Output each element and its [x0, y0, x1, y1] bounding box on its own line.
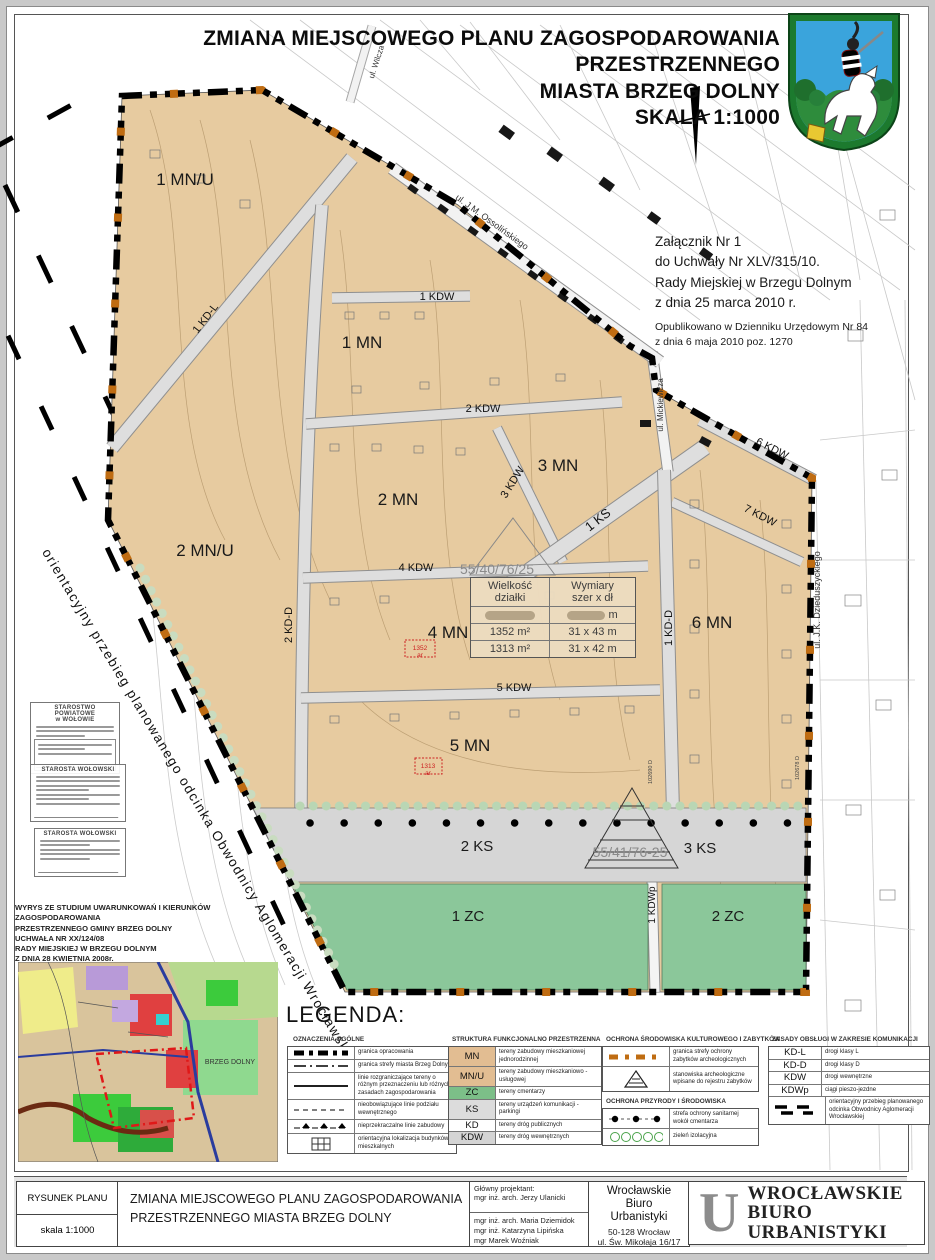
- boundary-dash-symbol: [288, 1047, 355, 1059]
- internal-division-line-symbol: [288, 1100, 355, 1119]
- parcel-size-table: Wielkośćdziałki Wymiaryszer x dł m 1352 …: [470, 577, 636, 658]
- annex-note: Załącznik Nr 1 do Uchwały Nr XLV/315/10.…: [655, 232, 917, 350]
- footer-designers-cell: Główny projektant: mgr inż. arch. Jerzy …: [469, 1181, 590, 1247]
- ks-parking-strip: [253, 806, 806, 882]
- table-row-redacted: m: [471, 606, 635, 623]
- road-label-1kdwp: 1 KDWp: [647, 886, 658, 924]
- study-inset-map: BRZEG DOLNY: [18, 962, 278, 1162]
- street-label-mickiewicza: ul. Mickiewicza: [656, 378, 665, 432]
- table-header-size: Wielkośćdziałki: [471, 578, 550, 606]
- legend-item: granica strefy miasta Brzeg Dolny: [288, 1059, 456, 1072]
- zone-label-3ks: 3 KS: [684, 840, 717, 857]
- office-address: 50-128 Wrocław: [589, 1227, 689, 1238]
- footer-office-cell: Wrocławskie Biuro Urbanistyki 50-128 Wro…: [588, 1181, 690, 1247]
- legend-sec1-heading: OZNACZENIA OGÓLNE: [293, 1036, 364, 1043]
- redacted-value: [485, 611, 535, 620]
- title-line-3-scale: SKALA 1:1000: [28, 105, 780, 131]
- zc-cemetery-zones: [292, 884, 806, 990]
- annex-line-4: z dnia 25 marca 2010 r.: [655, 293, 917, 313]
- zone-label-3mn: 3 MN: [538, 456, 579, 475]
- legend-sec5-heading: ZASADY OBSŁUGI W ZAKRESIE KOMUNIKACJI: [772, 1036, 918, 1043]
- zone-label-4mn: 4 MN: [428, 623, 469, 642]
- title-line-1: ZMIANA MIEJSCOWEGO PLANU ZAGOSPODAROWANI…: [28, 26, 780, 79]
- svg-text:ar: ar: [425, 770, 432, 777]
- scale-label: skala 1:1000: [17, 1215, 118, 1245]
- study-extract-note: WYRYS ZE STUDIUM UWARUNKOWAŃ I KIERUNKÓW…: [15, 903, 295, 965]
- road-label-2kdw: 2 KDW: [466, 403, 501, 415]
- road-label-5kdw: 5 KDW: [497, 682, 532, 694]
- sanitary-zone-symbol: [603, 1109, 670, 1128]
- legend-general-symbols: granica opracowania granica strefy miast…: [287, 1046, 457, 1154]
- legend-item: KS tereny urządzeń komunikacji - parking…: [449, 1099, 601, 1119]
- archeo-site-symbol: [603, 1067, 670, 1091]
- bypass-route-symbol: [769, 1097, 826, 1124]
- point-ref-b: 102678 D: [795, 756, 801, 780]
- legend-heritage: granica strefy ochrony zabytków archeolo…: [602, 1046, 759, 1092]
- designer-name: mgr inż. arch. Jerzy Ulanicki: [474, 1193, 585, 1202]
- swatch-mnu: MN/U: [449, 1067, 496, 1086]
- table-header-dims: Wymiaryszer x dł: [550, 578, 635, 606]
- zone-label-2ks: 2 KS: [461, 838, 494, 855]
- team-member: mgr Marek Woźniak: [474, 1236, 585, 1246]
- legend-item: strefa ochrony sanitarnej wokół cmentarz…: [603, 1109, 758, 1128]
- inset-city-label: BRZEG DOLNY: [205, 1059, 256, 1066]
- team-member: mgr inż. Katarzyna Lipińska: [474, 1226, 585, 1236]
- road-label-1kdd: 1 KD-D: [663, 610, 675, 646]
- legend-item: KDW tereny dróg wewnętrznych: [449, 1131, 601, 1144]
- table-row: 1313 m² 31 x 42 m: [471, 640, 635, 657]
- wbu-logo-icon: U: [699, 1188, 739, 1238]
- drawing-type-label: RYSUNEK PLANU: [17, 1182, 118, 1215]
- house-location-symbol: [288, 1134, 355, 1153]
- legend-item: orientacyjny przebieg planowanego odcink…: [769, 1096, 929, 1124]
- parcel-ref-b: 55/41/76-25: [593, 844, 668, 860]
- team-member: mgr inż. arch. Maria Dziemidok: [474, 1216, 585, 1226]
- legend-item: granica strefy ochrony zabytków archeolo…: [603, 1047, 758, 1066]
- legend-item: MN tereny zabudowy mieszkaniowej jednoro…: [449, 1047, 601, 1066]
- svg-text:ar: ar: [417, 652, 424, 659]
- office-name: Wrocławskie: [589, 1185, 689, 1198]
- zone-label-6mn: 6 MN: [692, 613, 733, 632]
- legend-item: ZC tereny cmentarzy: [449, 1086, 601, 1099]
- footer-title-line-1: ZMIANA MIEJSCOWEGO PLANU ZAGOSPODAROWANI…: [130, 1190, 470, 1209]
- stamp-starosta-wolowski-1: STAROSTA WOŁOWSKI: [30, 764, 126, 822]
- legend-sec2-heading: STRUKTURA FUNKCJONALNO PRZESTRZENNA: [452, 1036, 601, 1043]
- plan-sheet-page: 1352 ar 1313 ar 1 MN/U 2 MN/U 1 MN 2 MN …: [0, 0, 935, 1260]
- publication-line-1: Opublikowano w Dzienniku Urzędowym Nr 84: [655, 320, 917, 335]
- publication-line-2: z dnia 6 maja 2010 poz. 1270: [655, 335, 917, 350]
- swatch-mn: MN: [449, 1047, 496, 1066]
- zone-label-2mn: 2 MN: [378, 490, 419, 509]
- street-label-dzieduszyckiego: ul. J.K. Dzieduszyckiego: [812, 551, 822, 649]
- brzeg-dolny-coat-of-arms: [787, 12, 901, 152]
- legend-item: linie rozgraniczające tereny o różnym pr…: [288, 1072, 456, 1100]
- point-ref-a: 102690 D: [648, 760, 654, 784]
- wbu-logo-text: WROCŁAWSKIE BIURO URBANISTYKI: [747, 1184, 902, 1242]
- redacted-value: [567, 611, 605, 620]
- legend-item: KDW drogi wewnętrzne: [769, 1071, 929, 1084]
- legend-transport: KD-L drogi klasy L KD-D drogi klasy D KD…: [768, 1046, 930, 1125]
- legend-item: KD-D drogi klasy D: [769, 1059, 929, 1072]
- legend-item: granica opracowania: [288, 1047, 456, 1059]
- legend-item: MN/U tereny zabudowy mieszkaniowo - usłu…: [449, 1066, 601, 1086]
- red-mark-1352: 1352: [413, 645, 428, 652]
- footer-drawing-cell: RYSUNEK PLANU skala 1:1000: [16, 1181, 119, 1247]
- annex-line-3: Rady Miejskiej w Brzegu Dolnym: [655, 273, 917, 293]
- legend-item: orientacyjna lokalizacja budynków mieszk…: [288, 1133, 456, 1153]
- zone-label-2zc: 2 ZC: [712, 908, 745, 925]
- legend-title: LEGENDA:: [286, 1002, 405, 1028]
- city-zone-line-symbol: [288, 1060, 355, 1072]
- zone-label-5mn: 5 MN: [450, 736, 491, 755]
- legend-item: KD-L drogi klasy L: [769, 1047, 929, 1059]
- legend-item: KD tereny dróg publicznych: [449, 1119, 601, 1132]
- legend-item: zieleń izolacyjna: [603, 1128, 758, 1145]
- footer-title-cell: ZMIANA MIEJSCOWEGO PLANU ZAGOSPODAROWANI…: [117, 1181, 471, 1247]
- designer-label: Główny projektant:: [474, 1184, 585, 1193]
- legend-sec4-heading: OCHRONA PRZYRODY I ŚRODOWISKA: [606, 1098, 726, 1105]
- road-label-4kdw: 4 KDW: [399, 562, 434, 574]
- annex-line-1: Załącznik Nr 1: [655, 232, 917, 252]
- annex-line-2: do Uchwały Nr XLV/315/10.: [655, 252, 917, 272]
- legend-item: nieobowiązujące linie podziału wewnętrzn…: [288, 1099, 456, 1119]
- footer-title-line-2: PRZESTRZENNEGO MIASTA BRZEG DOLNY: [130, 1209, 470, 1228]
- legend-item: nieprzekraczalne linie zabudowy: [288, 1119, 456, 1133]
- swatch-kd: KD: [449, 1120, 496, 1132]
- legend-environment: strefa ochrony sanitarnej wokół cmentarz…: [602, 1108, 759, 1146]
- legend-item: KDWp ciągi pieszo-jezdne: [769, 1084, 929, 1097]
- road-label-2kdd: 2 KD-D: [283, 607, 295, 643]
- stamp-starosta-wolowski-2: STAROSTA WOŁOWSKI: [34, 828, 126, 877]
- zone-label-2mnu: 2 MN/U: [176, 541, 234, 560]
- title-line-2: MIASTA BRZEG DOLNY: [28, 79, 780, 105]
- legend-sec3-heading: OCHRONA ŚRODOWISKA KULTUROWEGO I ZABYTKÓ…: [606, 1036, 780, 1043]
- page-title: ZMIANA MIEJSCOWEGO PLANU ZAGOSPODAROWANI…: [28, 26, 780, 131]
- legend-item: stanowiska archeologiczne wpisane do rej…: [603, 1066, 758, 1091]
- parcel-ref-a: 55/40/76/25: [460, 561, 534, 577]
- archeo-boundary-symbol: [603, 1047, 670, 1066]
- zone-label-1mnu: 1 MN/U: [156, 170, 214, 189]
- footer-logo-cell: U WROCŁAWSKIE BIURO URBANISTYKI: [688, 1181, 925, 1245]
- zone-label-1mn: 1 MN: [342, 333, 383, 352]
- legend-land-use: MN tereny zabudowy mieszkaniowej jednoro…: [448, 1046, 602, 1145]
- zoning-line-symbol: [288, 1073, 355, 1100]
- swatch-ks: KS: [449, 1100, 496, 1119]
- table-row: 1352 m² 31 x 43 m: [471, 623, 635, 640]
- swatch-zc: ZC: [449, 1087, 496, 1099]
- road-label-1kdw: 1 KDW: [420, 291, 455, 303]
- red-mark-1313: 1313: [421, 763, 436, 770]
- zone-label-1zc: 1 ZC: [452, 908, 485, 925]
- green-belt-symbol: [603, 1129, 670, 1145]
- swatch-kdw: KDW: [449, 1132, 496, 1144]
- building-line-symbol: [288, 1120, 355, 1133]
